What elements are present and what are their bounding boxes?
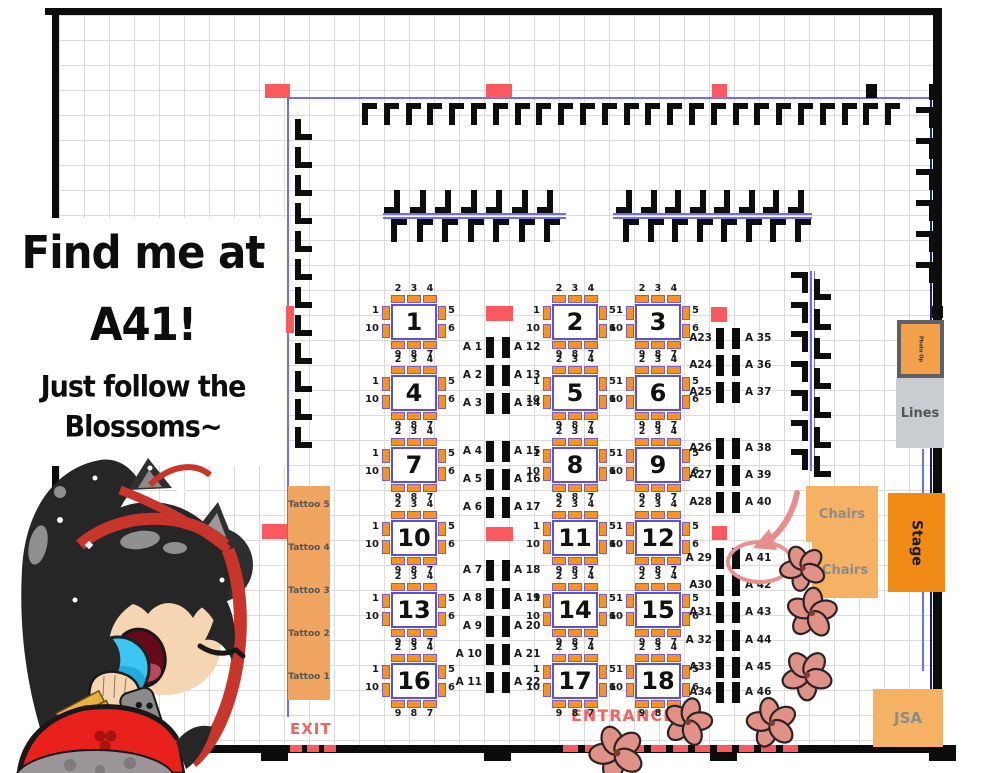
seat [584,557,598,565]
artist-seat-bar [732,602,740,623]
booth-mark [295,287,312,308]
pillar-red [486,527,513,541]
seat [584,700,598,708]
booth-mark [763,190,779,213]
seat [667,700,681,708]
seat [382,665,390,679]
seat-number-left: 10 [606,539,623,550]
artist-seat-label: A27 [660,469,712,481]
seat [543,540,551,554]
seat-number-right: 6 [448,539,463,550]
seat [568,438,582,446]
artist-seat-label: A31 [660,606,712,618]
artist-seat-label: A 8 [430,592,482,604]
seat [626,665,634,679]
seat-number-right: 5 [448,664,463,675]
seat [568,557,582,565]
seat-number-left: 1 [608,376,623,387]
seat [599,306,607,320]
booth-mark [916,231,935,252]
booth-mark [798,103,813,125]
seat-number-right: 6 [692,539,707,550]
artist-seat-label: A 29 [660,552,712,564]
booth-mark [842,103,857,125]
seat-numbers-top: 2 3 4 [391,427,437,437]
booth-mark [645,103,660,125]
booth-mark [435,190,451,213]
seat [651,412,665,420]
artist-seat-label: A26 [660,442,712,454]
artist-seat-label: A 4 [430,445,482,457]
seat [382,540,390,554]
artist-seat-bar [486,337,494,358]
pillar-red [262,524,287,539]
seat [584,654,598,662]
exit-dash [324,745,336,752]
photo-op-area: Photo Op [897,320,944,378]
booth-mark [295,315,312,336]
artist-seat-bar [732,630,740,651]
artist-seat-label: A 39 [745,469,797,481]
artist-seat-bar [732,438,740,459]
seat-number-left: 1 [525,305,540,316]
jsa-area: JSA [873,689,943,747]
artist-seat-bar [716,682,724,703]
seat-number-left: 10 [362,611,379,622]
booth-mark [814,397,831,418]
booth-mark [295,175,312,196]
booth-mark [468,219,484,242]
artist-seat-label: A 46 [745,686,797,698]
seat [382,395,390,409]
entrance-dash [695,745,710,752]
seat-number-right: 5 [448,521,463,532]
seat [568,341,582,349]
booth-mark [721,219,737,242]
artist-seat-bar [716,465,724,486]
artist-seat-label: A 1 [430,341,482,353]
seat [568,700,582,708]
artist-seat-bar [716,657,724,678]
artist-seat-bar [502,588,510,609]
booth-mark [406,103,421,125]
seat-number-left: 1 [364,376,379,387]
booth-mark [648,219,664,242]
seat [391,438,405,446]
seat-number-left: 10 [362,323,379,334]
table-box: 11 [552,520,598,556]
seat [584,629,598,637]
seat-numbers-top: 2 3 4 [635,284,681,294]
tattoo-station-label: Tattoo 1 [288,672,330,682]
booth-mark [512,190,528,213]
booth-mark [623,219,639,242]
seat [552,295,566,303]
booth-mark [770,219,786,242]
booth-mark [461,190,477,213]
artist-seat-label: A 15 [514,445,566,457]
tattoo-stations-area: Tattoo 5Tattoo 4Tattoo 3Tattoo 2Tattoo 1 [288,486,330,700]
booth-mark [754,103,769,125]
entrance-dash [651,745,666,752]
seat-number-left: 10 [606,611,623,622]
seat [391,629,405,637]
seat [407,557,421,565]
seat [599,449,607,463]
booth-mark [814,338,831,359]
seat [651,295,665,303]
seat [423,412,437,420]
guide-line-top [288,97,934,99]
seat [626,522,634,536]
seat [568,366,582,374]
seat [407,484,421,492]
seat-number-left: 10 [523,539,540,550]
pillar-black [932,306,943,318]
chairs-label: Chairs [819,507,865,522]
booth-mark [667,103,682,125]
seat [552,700,566,708]
signage-line-2: A41! [0,298,286,351]
booth-mark [791,420,808,441]
booth-mark [471,103,486,125]
booth-mark [391,219,407,242]
seat-number-left: 10 [606,466,623,477]
booth-mark [536,103,551,125]
seat [635,557,649,565]
pillar-red [486,306,513,321]
artist-seat-label: A 12 [514,341,566,353]
seat [584,366,598,374]
booth-col-line [810,271,812,471]
artist-seat-bar [486,560,494,581]
seat [423,700,437,708]
seat [626,594,634,608]
artist-seat-label: A25 [660,386,712,398]
artist-seat-bar [486,497,494,518]
artist-seat-label: A 3 [430,397,482,409]
seat [382,377,390,391]
signage-line-3: Just follow the [0,371,286,404]
booth-mark [711,103,726,125]
seat [568,654,582,662]
artist-seat-bar [486,588,494,609]
booth-mark [493,219,509,242]
artist-seat-bar [502,560,510,581]
seat [568,412,582,420]
booth-mark [295,259,312,280]
booth-mark [295,231,312,252]
seat [626,306,634,320]
seat [651,511,665,519]
seat [599,377,607,391]
booth-mark [814,368,831,389]
seat-number-left: 10 [362,682,379,693]
seat [635,629,649,637]
booth-mark [739,190,755,213]
booth-mark [916,169,935,190]
booth-mark [295,203,312,224]
seat [599,665,607,679]
booth-mark [362,103,377,125]
artist-seat-label: A 20 [514,620,566,632]
seat [568,629,582,637]
seat [599,522,607,536]
artist-seat-bar [732,382,740,403]
seat [543,306,551,320]
booth-mark [515,103,530,125]
seat-number-left: 10 [362,539,379,550]
artist-seat-label: A 19 [514,592,566,604]
seat [635,341,649,349]
seat-number-left: 1 [608,521,623,532]
seat-number-left: 1 [608,593,623,604]
seat [635,654,649,662]
booth-mark [714,190,730,213]
seat-number-left: 10 [606,394,623,405]
seat [382,449,390,463]
seat [635,295,649,303]
seat [552,412,566,420]
artist-seat-bar [502,497,510,518]
seat [382,324,390,338]
exit-label: EXIT [290,720,332,738]
artist-seat-bar [716,575,724,596]
booth-mark [537,190,553,213]
pillar-black [261,745,288,761]
tattoo-station-label: Tattoo 4 [288,543,330,553]
seat [568,484,582,492]
booth-mark [410,190,426,213]
tattoo-station-label: Tattoo 5 [288,500,330,510]
artist-seat-bar [502,644,510,665]
artist-seat-label: A23 [660,332,712,344]
seat [382,467,390,481]
seat [635,438,649,446]
booth-row-line [383,213,566,215]
seat-numbers-top: 2 3 4 [552,355,598,365]
booth-mark [384,103,399,125]
jsa-label: JSA [894,709,922,727]
seat [391,484,405,492]
booth-mark [916,200,935,221]
lines-label: Lines [901,406,940,421]
artist-seat-bar [502,616,510,637]
entrance-dash [673,745,688,752]
seat [584,341,598,349]
tattoo-station-label: Tattoo 2 [288,629,330,639]
seat [391,412,405,420]
artist-seat-bar [732,355,740,376]
seat-number-right: 5 [692,593,707,604]
seat [391,557,405,565]
seat [391,366,405,374]
artist-seat-label: A 16 [514,473,566,485]
entrance-dash [739,745,754,752]
seat [626,540,634,554]
booth-mark [427,103,442,125]
booth-mark [814,456,831,477]
seat-number-left: 1 [364,521,379,532]
artist-seat-bar [502,672,510,693]
artist-seat-bar [486,672,494,693]
booth-mark [776,103,791,125]
seat-number-right: 5 [448,305,463,316]
booth-mark [791,302,808,323]
artist-seat-label: A24 [660,359,712,371]
seat-numbers-top: 2 3 4 [391,355,437,365]
booth-mark [916,262,935,283]
booth-mark [916,107,935,128]
seat [407,511,421,519]
artist-seat-bar [716,328,724,349]
booth-mark [665,190,681,213]
a41-highlight-circle [726,540,794,584]
seat [391,700,405,708]
artist-seat-label: A 43 [745,606,797,618]
seat [626,395,634,409]
signage-line-1: Find me at [0,226,286,279]
artist-seat-label: A 36 [745,359,797,371]
pillar-black [484,745,511,761]
seat [407,629,421,637]
seat [382,522,390,536]
seat-number-left: 1 [364,305,379,316]
seat [682,522,690,536]
stage-label: Stage [909,520,925,566]
seat-number-left: 10 [362,466,379,477]
artist-seat-bar [486,616,494,637]
seat [423,583,437,591]
seat [584,583,598,591]
booth-mark [863,103,878,125]
seat [391,295,405,303]
seat-number-left: 1 [525,521,540,532]
booth-mark [820,103,835,125]
table-box: 2 [552,304,598,340]
table-box: 10 [391,520,437,556]
seat [407,366,421,374]
seat [407,295,421,303]
artist-seat-bar [732,465,740,486]
artist-seat-label: A 9 [430,620,482,632]
artist-seat-bar [486,441,494,462]
seat [543,522,551,536]
tattoo-station-label: Tattoo 3 [288,586,330,596]
seat [423,295,437,303]
entrance-dash [585,745,600,752]
seat [635,366,649,374]
seat [667,412,681,420]
seat-numbers-top: 2 3 4 [635,427,681,437]
table-box: 12 [635,520,681,556]
table-box: 1 [391,304,437,340]
mascot-illustration [0,450,240,773]
booth-mark [295,147,312,168]
convention-floor-map: Tattoo 5Tattoo 4Tattoo 3Tattoo 2Tattoo 1… [0,0,1000,773]
seat [626,324,634,338]
seat-number-left: 10 [606,323,623,334]
seat [407,412,421,420]
seat [552,484,566,492]
booth-mark [384,190,400,213]
seat [382,306,390,320]
seat-number-right: 5 [692,521,707,532]
artist-seat-bar [486,469,494,490]
seat [543,324,551,338]
seat [584,412,598,420]
seat [635,700,649,708]
artist-seat-bar [502,337,510,358]
exit-dash [290,745,302,752]
booth-mark [493,103,508,125]
seat-numbers-bottom: 9 8 7 [391,709,437,719]
seat [626,377,634,391]
seat [438,324,446,338]
entrance-dash [563,745,578,752]
artist-seat-bar [716,548,724,569]
seat [382,594,390,608]
artist-seat-bar [502,365,510,386]
seat [584,438,598,446]
artist-seat-bar [716,630,724,651]
booth-mark [814,279,831,300]
seat [552,583,566,591]
chairs-area-top: Chairs [806,486,878,542]
booth-mark [519,219,535,242]
seat [651,484,665,492]
artist-seat-label: A34 [660,686,712,698]
seat [391,341,405,349]
entrance-dash [717,745,732,752]
artist-seat-label: A 45 [745,661,797,673]
seat-numbers-bottom: 9 8 7 [552,709,598,719]
seat-number-left: 10 [523,323,540,334]
artist-seat-label: A 44 [745,634,797,646]
entrance-dash [629,745,644,752]
pillar-red [712,84,727,98]
artist-seat-label: A 14 [514,397,566,409]
seat [584,511,598,519]
seat [667,484,681,492]
booth-mark [689,103,704,125]
booth-mark [486,190,502,213]
seat [667,295,681,303]
artist-seat-label: A 18 [514,564,566,576]
booth-mark [795,219,811,242]
exit-dash [307,745,319,752]
seat [635,583,649,591]
artist-seat-label: A 38 [745,442,797,454]
seat [382,612,390,626]
seat-number-right: 5 [692,305,707,316]
seat [651,700,665,708]
photo-op-label: Photo Op [918,336,924,362]
booth-row-line [613,213,812,215]
artist-seat-bar [732,328,740,349]
booth-mark [746,219,762,242]
artist-seat-label: A 21 [514,648,566,660]
booth-mark [814,309,831,330]
seat-numbers-top: 2 3 4 [391,284,437,294]
seat [407,700,421,708]
artist-seat-label: A33 [660,661,712,673]
booth-mark [788,190,804,213]
artist-seat-label: A 2 [430,369,482,381]
artist-seat-bar [502,393,510,414]
pillar-red [265,84,290,98]
seat [438,306,446,320]
